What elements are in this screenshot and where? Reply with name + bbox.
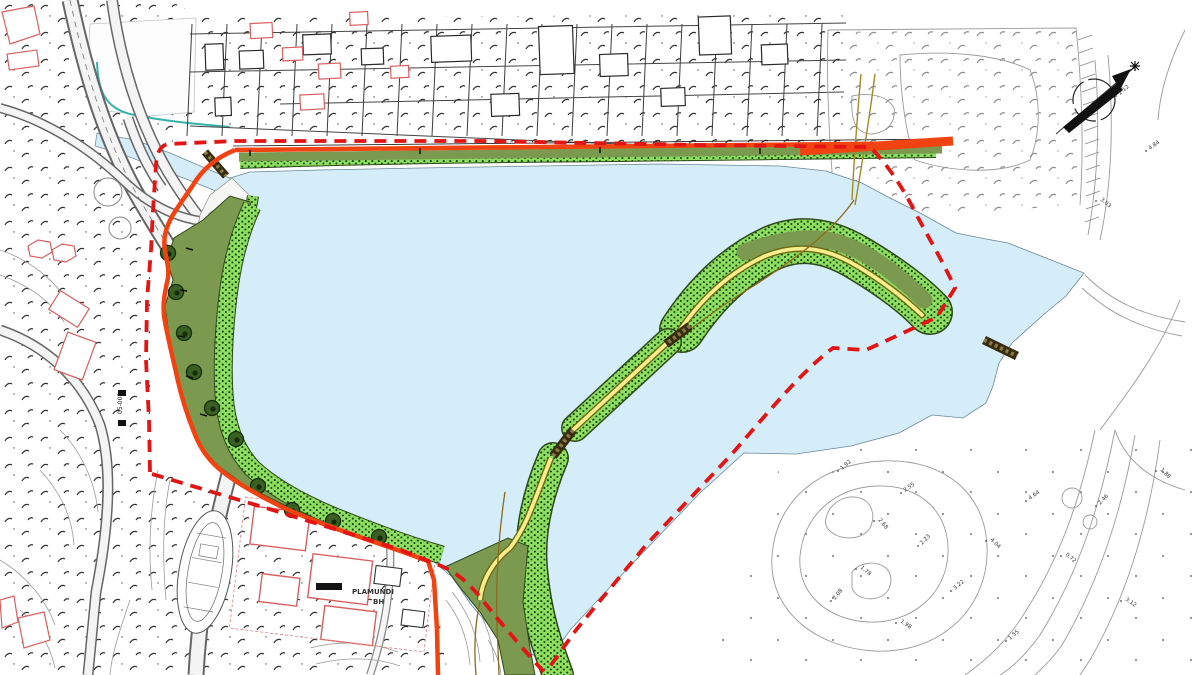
spot-height-dot <box>1060 555 1062 557</box>
spot-height-dot <box>837 470 839 472</box>
spot-height-dot <box>830 600 832 602</box>
spot-height-dot <box>855 568 857 570</box>
tree-core <box>377 535 382 540</box>
north-star-icon <box>1130 61 1140 71</box>
spot-height-dot <box>895 622 897 624</box>
spot-height-dot <box>985 540 987 542</box>
tree-core <box>331 519 336 524</box>
spot-height-dot <box>1120 600 1122 602</box>
road-code-marker <box>118 420 126 426</box>
spot-height-dot <box>1095 200 1097 202</box>
spot-height-dot <box>1005 640 1007 642</box>
tree-core <box>192 370 197 375</box>
spot-height-dot <box>1095 505 1097 507</box>
road-code-label: 05-008 <box>117 393 124 414</box>
tree-core <box>234 437 239 442</box>
tree-core <box>210 406 215 411</box>
site-plan-map: PLAMUNDI BH 05-008 1.922.552.682.231.782… <box>0 0 1200 675</box>
site-plan-page: PLAMUNDI BH 05-008 1.922.552.682.231.782… <box>0 0 1200 675</box>
spot-height-dot <box>950 590 952 592</box>
spot-height-dot <box>917 545 919 547</box>
tree-core <box>256 484 261 489</box>
spot-height-dot <box>1025 500 1027 502</box>
tree-core <box>182 331 187 336</box>
tree-core <box>174 290 179 295</box>
spot-height-dot <box>1155 470 1157 472</box>
parcel-name-label: PLAMUNDI <box>352 588 394 596</box>
parcel-name-label-2: BH <box>373 598 384 606</box>
spot-height-dot <box>873 520 875 522</box>
spot-height-dot <box>1115 95 1117 97</box>
label-marker <box>316 583 342 590</box>
spot-height-dot <box>900 492 902 494</box>
spot-height-dot <box>1145 150 1147 152</box>
